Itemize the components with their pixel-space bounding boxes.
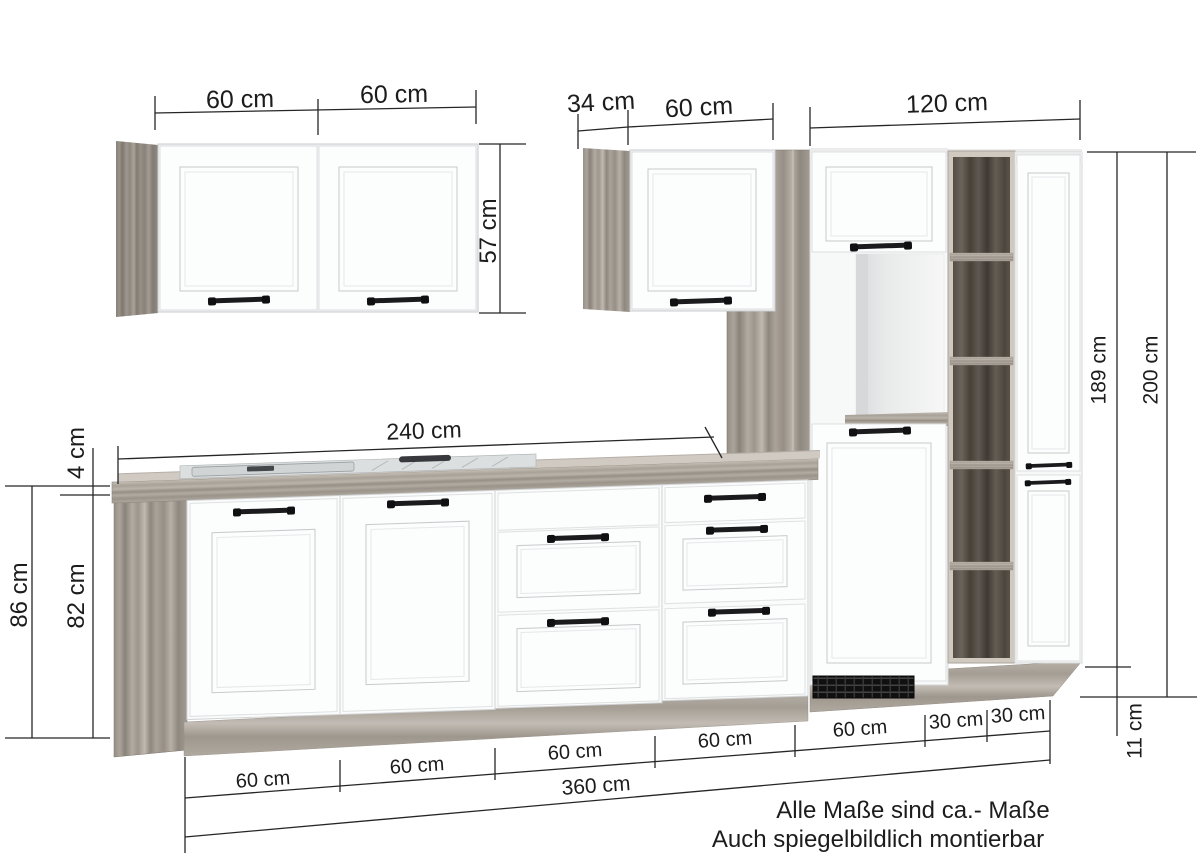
dim-mid-width: 60 cm — [664, 94, 733, 123]
dim-run-width: 240 cm — [386, 418, 462, 444]
base-run — [112, 443, 820, 757]
base-door-unit-1 — [187, 495, 340, 719]
dim-segment-6: 30 cm — [928, 709, 984, 733]
dim-base-height-total: 86 cm — [8, 562, 32, 627]
tall-unit — [810, 149, 1082, 712]
note-line-1: Alle Maße sind ca.- Maße — [776, 799, 1049, 823]
dim-segment-7: 30 cm — [990, 703, 1046, 727]
kitchen-dimension-diagram: 60 cm 60 cm 57 cm 34 cm 60 cm 120 cm 240… — [0, 0, 1200, 857]
sink-basin — [247, 466, 274, 472]
dim-base-height-unit: 82 cm — [65, 563, 89, 628]
tall-door-column — [1015, 152, 1082, 663]
dim-plinth-height: 11 cm — [1125, 703, 1146, 759]
dim-segment-3: 60 cm — [547, 740, 603, 764]
kitchen-drawing — [0, 0, 1200, 857]
dim-mid-depth: 34 cm — [566, 89, 635, 118]
dim-wall-left-door2: 60 cm — [360, 82, 429, 108]
wall-cabinet-left — [116, 141, 478, 317]
dim-tall-height-total: 200 cm — [1141, 336, 1162, 405]
dim-segment-2: 60 cm — [389, 754, 445, 778]
drawer-unit-2 — [662, 480, 808, 701]
appliance-niche — [856, 254, 944, 420]
dim-tall-width: 120 cm — [906, 90, 989, 118]
base-side-panel — [114, 499, 187, 757]
dim-segment-4: 60 cm — [697, 728, 753, 752]
base-door-unit-2 — [340, 490, 495, 714]
dim-segment-1: 60 cm — [235, 768, 291, 792]
vent-grille — [813, 676, 914, 698]
dim-total-width: 360 cm — [561, 773, 631, 799]
dim-wall-left-door1: 60 cm — [206, 87, 275, 113]
note-line-2: Auch spiegelbildlich montierbar — [712, 828, 1044, 852]
drawer-unit-1 — [495, 485, 662, 709]
wall-cabinet-middle — [583, 148, 775, 312]
dim-segment-5: 60 cm — [832, 717, 888, 741]
dim-worktop-thickness: 4 cm — [65, 427, 89, 479]
open-shelf-column — [948, 151, 1015, 663]
dim-wall-height: 57 cm — [477, 198, 501, 263]
dim-tall-height-unit: 189 cm — [1089, 336, 1110, 405]
